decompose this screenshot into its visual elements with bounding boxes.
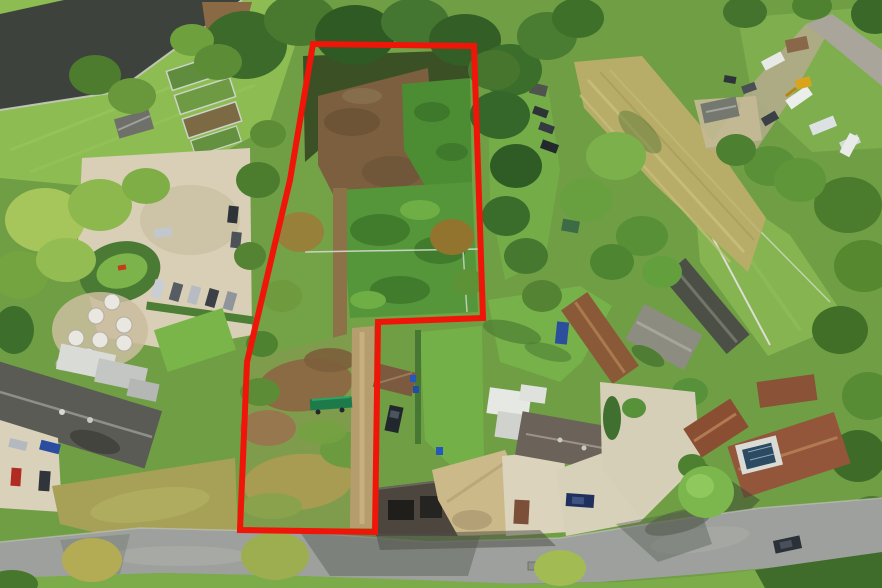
parked-car (227, 206, 239, 224)
parasol (116, 317, 132, 333)
thatch-dormer (59, 409, 65, 415)
dirt-path (333, 188, 347, 338)
parked-car (555, 321, 569, 344)
car-glass (572, 497, 584, 505)
tree (774, 158, 826, 202)
thatch-dormer (87, 417, 93, 423)
tree (560, 178, 612, 222)
bush (622, 398, 646, 418)
tree (812, 306, 868, 354)
hedge (603, 396, 621, 440)
tree (234, 242, 266, 270)
tree (108, 78, 156, 114)
tree (430, 219, 474, 255)
tree (490, 144, 542, 188)
scrub-blob (298, 420, 346, 444)
trailer-wheel (340, 408, 345, 413)
tree (122, 168, 170, 204)
tree (194, 44, 242, 80)
trailer-wheel (316, 410, 321, 415)
crop-texture (436, 143, 468, 161)
wheelie-bin (436, 447, 443, 455)
tree-highlight (686, 474, 714, 498)
earth-shade (324, 108, 380, 136)
bramble-light (400, 200, 440, 220)
bramble-dark (350, 214, 410, 246)
barn-opening (388, 500, 414, 520)
tree (642, 256, 682, 288)
parked-car (10, 468, 21, 487)
tree (62, 538, 122, 582)
tree (482, 196, 530, 236)
wheelie-bin (410, 375, 416, 382)
tree (590, 244, 634, 280)
tree (36, 238, 96, 282)
tree (586, 132, 646, 180)
tree (534, 550, 586, 586)
small-shed (513, 500, 529, 525)
wheelie-bin (413, 386, 419, 393)
parasol (68, 330, 84, 346)
tree (522, 280, 562, 312)
parasol (92, 332, 108, 348)
tree (716, 134, 756, 166)
road-patch (110, 546, 250, 566)
crop-texture (414, 102, 450, 122)
aerial-photo-frame (0, 0, 882, 588)
dirt-patch (240, 410, 296, 446)
thatch-dark (452, 510, 492, 530)
skylight (558, 438, 563, 443)
aerial-photo (0, 0, 882, 588)
tree (241, 532, 309, 580)
parked-car (38, 471, 50, 492)
tree (250, 120, 286, 148)
barn-court (502, 450, 568, 536)
earth-light (342, 88, 382, 104)
tree (504, 238, 548, 274)
parasol (88, 308, 104, 324)
skylight (582, 446, 587, 451)
parasol (104, 294, 120, 310)
bramble-light (350, 291, 386, 309)
scrub-blob (242, 493, 302, 519)
parasol (116, 335, 132, 351)
tree (236, 162, 280, 198)
dirt-patch (304, 348, 356, 372)
